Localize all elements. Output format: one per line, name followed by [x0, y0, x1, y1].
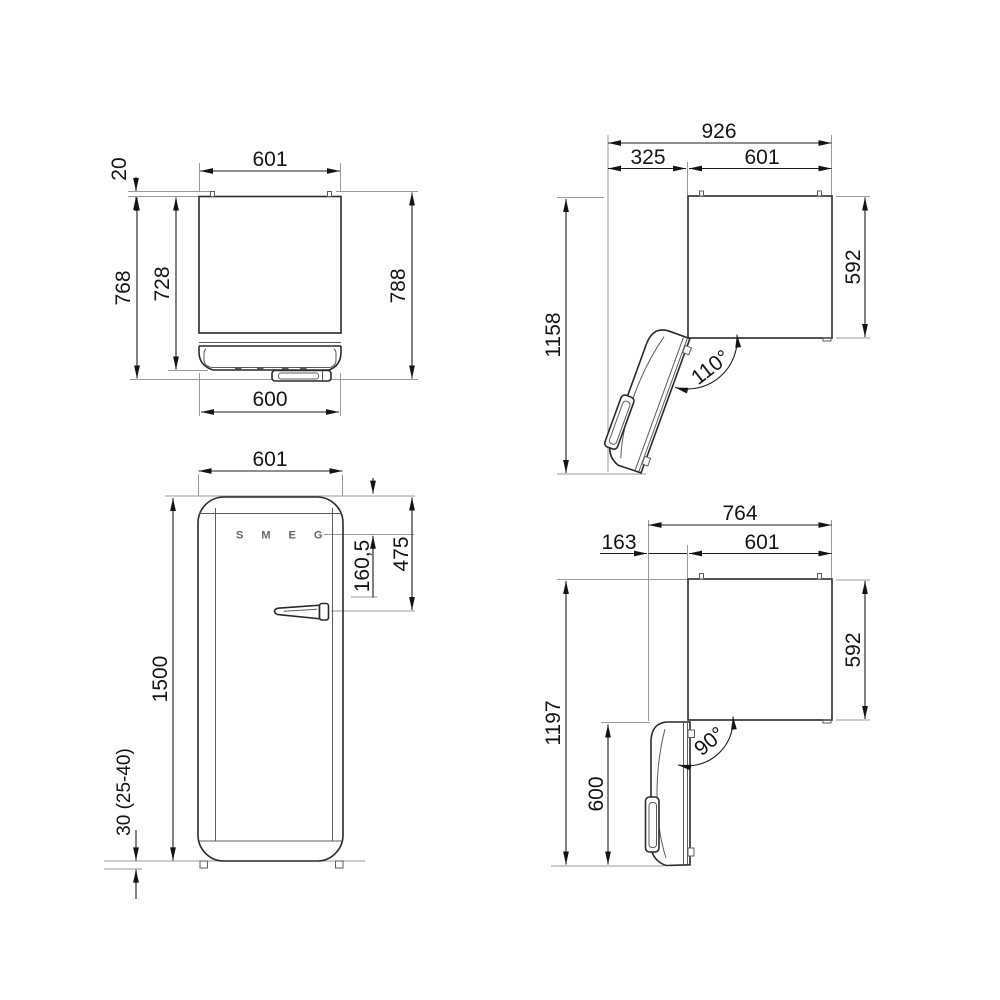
hinge-pin — [700, 574, 704, 580]
dim-front-feet-30: 30 (25-40) — [114, 748, 135, 836]
angle-90-label: 90° — [690, 723, 729, 761]
dim-plan-depth-788: 788 — [387, 268, 410, 303]
hinge-pin — [211, 192, 215, 197]
dim-front-height-1500: 1500 — [149, 656, 172, 703]
dim-90-depth-592: 592 — [842, 632, 865, 667]
hinge-pin — [328, 192, 332, 197]
door-outline-plan — [199, 346, 341, 370]
dim-110-clearance-325: 325 — [630, 146, 665, 169]
dim-90-clearance-163: 163 — [601, 531, 636, 554]
dim-plan-width-601: 601 — [252, 148, 287, 171]
dim-110-overall-926: 926 — [701, 120, 736, 143]
hinge-pin — [818, 191, 822, 196]
dim-front-handle-475: 475 — [390, 536, 413, 571]
hinge-pin — [700, 191, 704, 196]
technical-drawing-page: 20 601 768 728 788 600 SMEG — [0, 0, 1000, 1000]
corner-foot — [823, 338, 831, 341]
dim-plan-depth-768: 768 — [112, 270, 135, 305]
dim-90-door-600: 600 — [585, 776, 608, 811]
dim-plan-hinge-20: 20 — [108, 157, 131, 180]
cabinet-outline-plan — [199, 197, 341, 334]
plan-view-open-90: 764 163 601 592 1197 600 90° — [542, 502, 870, 866]
dim-front-width-601: 601 — [252, 448, 287, 471]
dim-110-depth-592: 592 — [842, 249, 865, 284]
dim-110-overall-1158: 1158 — [542, 312, 565, 357]
cabinet-outline-plan-110 — [688, 196, 832, 338]
dim-90-width-601: 601 — [744, 531, 779, 554]
open-door-90 — [646, 722, 695, 866]
refrigerator-dimension-drawing: 20 601 768 728 788 600 SMEG — [0, 0, 1000, 1000]
hinge-pin — [818, 574, 822, 580]
foot — [200, 861, 208, 868]
foot — [336, 861, 344, 868]
plan-view-open-110: 926 325 601 592 1158 110° — [542, 120, 870, 475]
plan-view-closed: 20 601 768 728 788 600 — [108, 148, 418, 416]
dim-plan-door-600: 600 — [252, 388, 287, 411]
front-view: SMEG 601 160,5 475 1500 30 (25-40) — [104, 448, 415, 899]
dim-90-overall-1197: 1197 — [542, 700, 565, 745]
cabinet-outline-plan-90 — [688, 579, 832, 720]
dim-110-width-601: 601 — [744, 146, 779, 169]
dim-90-overall-764: 764 — [722, 502, 757, 525]
dim-plan-depth-728: 728 — [151, 266, 174, 301]
dim-front-logo-160-5: 160,5 — [351, 540, 374, 593]
brand-logo: SMEG — [236, 530, 340, 542]
door-handle-front — [275, 605, 320, 619]
fridge-front-outline — [198, 497, 343, 861]
corner-foot — [823, 720, 831, 723]
open-door-110 — [599, 323, 694, 475]
